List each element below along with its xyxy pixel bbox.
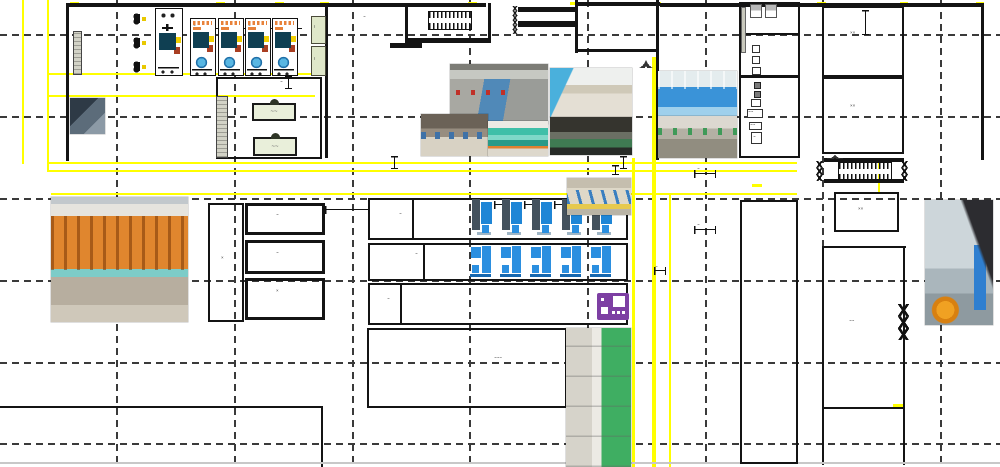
wall-segment [321, 406, 323, 467]
control-cabinet [311, 16, 326, 44]
inspection-machine-purple [597, 293, 629, 320]
door-arc [633, 56, 646, 68]
stairs [428, 11, 472, 30]
annotation-label: × [276, 289, 279, 294]
utility-box [752, 45, 760, 53]
rack-fixture [73, 31, 82, 75]
annotation-label: ~ [387, 297, 390, 302]
break-symbol [511, 6, 519, 20]
work-table: ~~ [252, 103, 296, 121]
dimension-marker [391, 156, 398, 169]
annotation-label: ×× [850, 31, 855, 36]
room-outline [245, 278, 325, 320]
annotation-label: ᎒ [314, 57, 315, 62]
assembly-machine [590, 244, 614, 278]
grid-line-h [0, 443, 1000, 445]
annotation-label: ~ [276, 251, 279, 256]
wall-segment [66, 3, 69, 161]
floor-marking-line [47, 162, 797, 164]
annotation-label: ~ [655, 265, 658, 270]
wall-segment [575, 0, 578, 53]
break-symbol [511, 20, 519, 34]
wall-segment [405, 3, 408, 43]
room-outline [245, 203, 325, 235]
utility-box [754, 91, 761, 98]
wall-segment [390, 43, 422, 48]
stairs [838, 162, 892, 180]
annotation-label: ~ [399, 212, 402, 217]
cnc-machine [155, 8, 183, 76]
assembly-machine [560, 244, 584, 278]
annotation-label: ~~ [750, 123, 755, 128]
annotation-label: ~~ [849, 319, 854, 324]
photo-line2 [567, 178, 631, 215]
dimension-marker [285, 76, 292, 89]
floor-marking-line [632, 158, 635, 467]
wall-segment [0, 406, 323, 408]
photo-lobby [550, 68, 632, 117]
annotation-label: ×× [858, 207, 863, 212]
annotation-label: ~ [697, 223, 700, 228]
dimension-marker [862, 10, 869, 35]
annotation-label: ×× [850, 104, 855, 109]
assembly-machine [500, 244, 524, 278]
wall-segment [822, 246, 824, 465]
room-outline [245, 240, 325, 274]
annotation-label: ~ [280, 80, 283, 85]
room-outline [367, 328, 567, 408]
annotation-label: ~ [753, 135, 756, 140]
blue-machine [472, 197, 495, 236]
rack-fixture [216, 96, 228, 158]
annotation-label: ~ [248, 24, 251, 29]
utility-box [752, 56, 760, 64]
door-arc [827, 149, 835, 159]
utility-box [741, 7, 746, 53]
wall-segment [822, 246, 906, 248]
annotation-label: ~ [276, 213, 279, 218]
annotation-label: ~ [193, 24, 196, 29]
annotation-label: ᎒ [314, 25, 315, 30]
room-outline [739, 2, 800, 158]
photo-dark [70, 98, 105, 134]
assembly-machine [470, 244, 494, 278]
photo-exhibit [658, 116, 737, 158]
room-outline [834, 192, 899, 232]
utility-box [751, 99, 761, 107]
wall-segment [575, 2, 660, 6]
annotation-label: ~ [697, 167, 700, 172]
wall-segment [518, 21, 576, 27]
photo-booth [488, 121, 548, 156]
cnc-machine [218, 18, 244, 76]
annotation-label: × [221, 256, 224, 261]
cnc-machine [272, 18, 298, 76]
annotation-label: ~ [363, 15, 366, 20]
room-outline [740, 200, 798, 464]
utility-box [752, 67, 761, 75]
photo-showroom [550, 117, 632, 155]
break-symbol [898, 304, 909, 340]
wall-segment [66, 3, 486, 7]
room-outline [368, 243, 628, 281]
assembly-machine [530, 244, 554, 278]
wall-segment [903, 246, 905, 465]
break-symbol [815, 161, 824, 181]
wall-segment [823, 407, 904, 409]
door-arc [835, 149, 843, 159]
annotation-label: ~~ [748, 110, 753, 115]
wall-segment [488, 3, 491, 43]
floor-marking-line [47, 170, 797, 172]
clamp-fixture [131, 12, 147, 26]
wall-segment [0, 462, 1000, 464]
floor-marking-line [752, 184, 762, 187]
work-table: ~~ [253, 137, 297, 156]
grid-line-v [352, 0, 354, 467]
annotation-label: ~ [415, 252, 418, 257]
floor-marking-line [22, 0, 24, 164]
photo-workshop [421, 114, 488, 156]
clamp-fixture [131, 60, 147, 74]
wall-segment [575, 49, 659, 52]
locker [765, 4, 777, 18]
dimension-marker [612, 165, 619, 175]
photo-pool [658, 71, 737, 116]
floor-marking-line [51, 193, 797, 195]
photo-greenline [566, 328, 631, 467]
dimension-marker [620, 156, 627, 169]
locker [750, 4, 762, 18]
photo-racks [51, 197, 188, 322]
utility-box [754, 82, 761, 89]
break-symbol [900, 161, 909, 181]
room-outline [822, 77, 904, 154]
wall-segment [518, 7, 576, 12]
door-arc [646, 56, 659, 68]
factory-floor-plan: ~~~~~××××××~~×~~×~~~~~~~~~~~~~~~~~~᎒᎒ [0, 0, 1000, 467]
floor-marking-line [669, 193, 671, 467]
blue-machine [532, 197, 555, 236]
dimension-marker [325, 206, 369, 214]
wall-segment [981, 3, 984, 160]
room-outline [208, 203, 244, 322]
blue-machine [502, 197, 525, 236]
floor-marking-line [47, 0, 49, 172]
photo-corridor [925, 200, 993, 325]
annotation-label: ~~~ [494, 356, 502, 361]
clamp-fixture [131, 36, 147, 50]
room-outline [368, 283, 628, 325]
